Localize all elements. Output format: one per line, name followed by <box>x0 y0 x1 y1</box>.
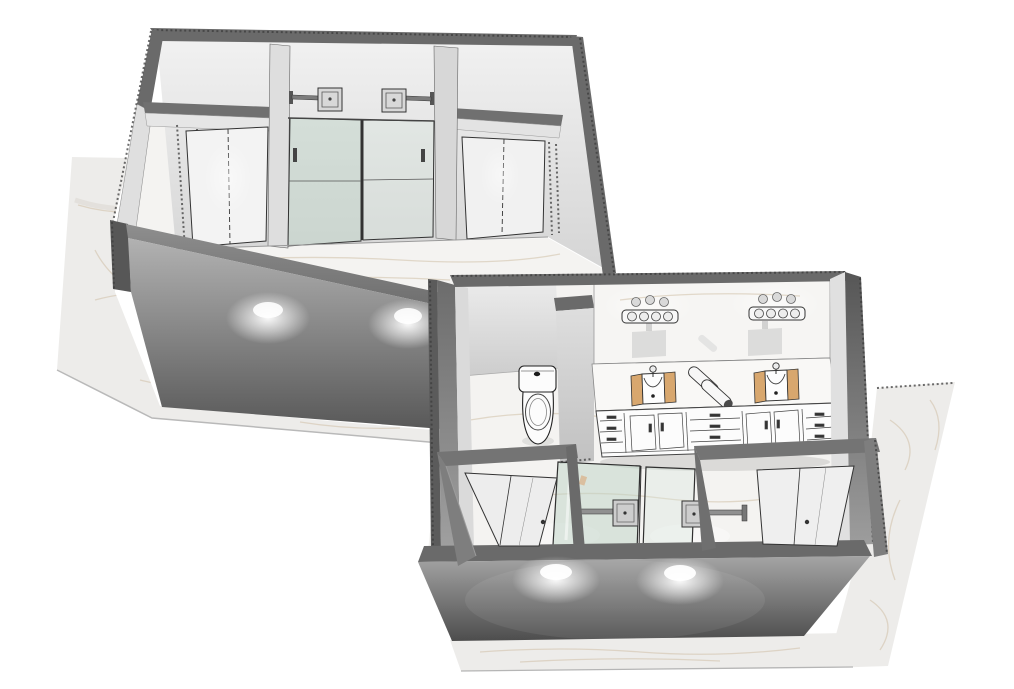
shower-pillar-right <box>434 46 458 240</box>
faucet <box>773 363 779 369</box>
downlight-core <box>253 302 283 318</box>
door-leaf <box>757 466 854 546</box>
downlight-core <box>664 565 696 581</box>
bathroom-3d-rendering <box>0 0 1014 689</box>
shower-pillar-left <box>268 44 290 248</box>
door-light-glow <box>480 145 520 205</box>
front-wall <box>418 540 872 641</box>
lower-view <box>418 271 955 671</box>
door-light-glow <box>204 142 252 214</box>
drain <box>651 394 655 398</box>
mirror-reflection-faucet-left <box>632 330 666 358</box>
shower-glass-left <box>288 118 361 246</box>
divider-wall <box>554 295 594 464</box>
shower-enclosure <box>288 118 434 246</box>
faucet <box>650 366 656 372</box>
glass-door-handle-left <box>293 148 297 162</box>
drain <box>774 391 778 395</box>
door-knob <box>541 520 545 524</box>
mirror-reflection-faucet-right <box>748 328 782 356</box>
downlight-core <box>540 564 572 580</box>
door-knob <box>805 520 809 524</box>
rendering-canvas <box>0 0 1014 689</box>
glass-door-handle-right <box>421 149 425 162</box>
toilet-room-wall <box>456 283 560 376</box>
flush-button <box>534 372 540 376</box>
downlight-core <box>394 308 422 324</box>
